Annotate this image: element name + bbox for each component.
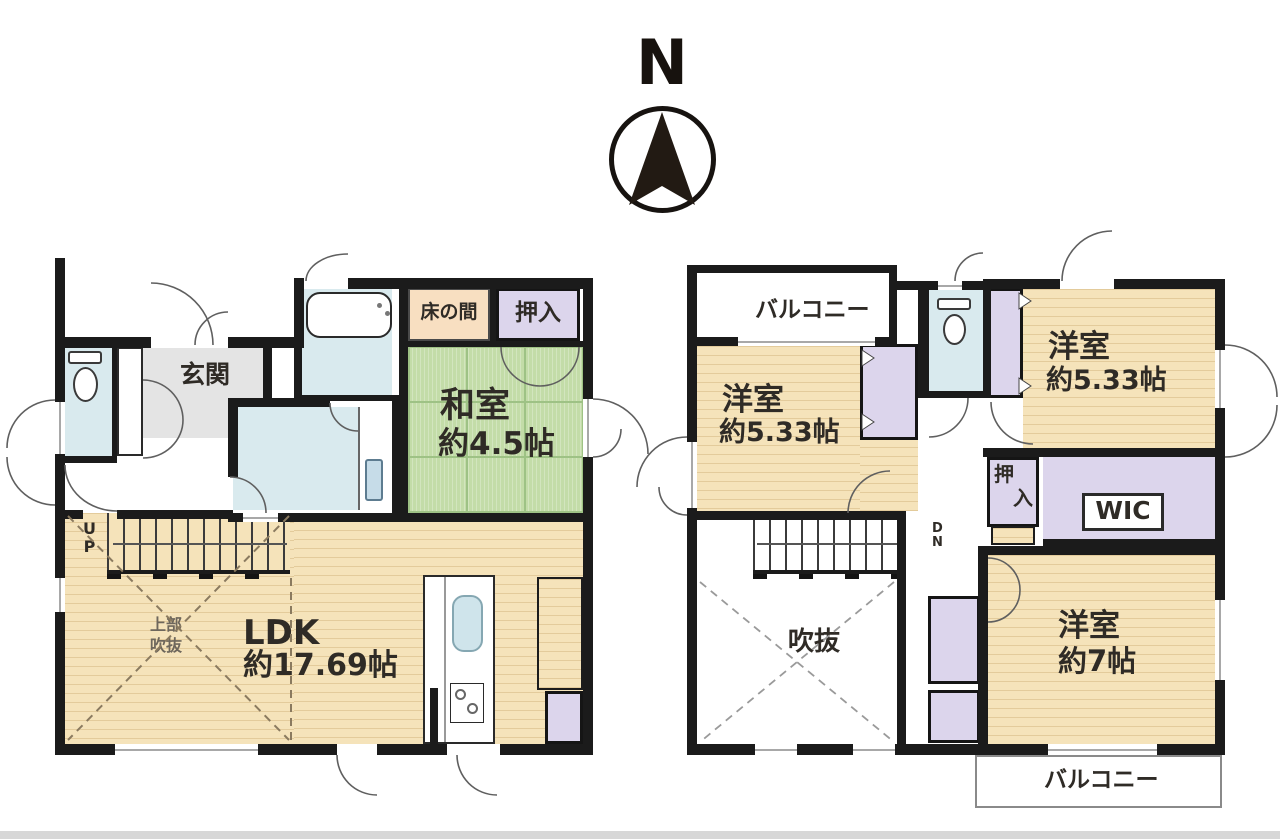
window xyxy=(738,337,875,346)
wall xyxy=(228,513,593,522)
door-opening xyxy=(337,744,377,755)
shoe-cabinet xyxy=(117,347,143,456)
kitchen-counter-edge xyxy=(444,577,446,742)
wall xyxy=(687,511,906,520)
door-opening xyxy=(304,278,348,289)
bedroom-se-size: 約7帖 xyxy=(1058,646,1136,676)
toilet-bowl-icon-1f xyxy=(73,367,98,402)
compass-circle xyxy=(609,106,716,213)
compass-north-label: N xyxy=(636,30,688,95)
ldk-name: LDK xyxy=(243,616,319,652)
staircase-2f-rail-line xyxy=(757,543,897,545)
washing-machine-icon xyxy=(365,459,383,501)
bedroom-se-name: 洋室 xyxy=(1058,610,1120,643)
wall xyxy=(55,258,65,755)
stove-icon xyxy=(450,683,484,723)
staircase-1f-rail-line xyxy=(113,543,287,545)
balcony-south-label: バルコニー xyxy=(1044,768,1159,792)
wall xyxy=(228,398,238,477)
stairs-up-label: U P xyxy=(83,520,96,555)
window xyxy=(853,744,895,755)
staircase-2f xyxy=(753,518,899,572)
bedroom-nw-closet xyxy=(860,344,918,440)
staircase-2f-hatch xyxy=(753,574,899,579)
wall xyxy=(918,391,991,398)
bath-faucet-icon xyxy=(377,303,382,308)
washroom-floor xyxy=(233,407,358,510)
wall xyxy=(897,511,906,755)
window xyxy=(55,402,65,454)
wall xyxy=(294,348,302,404)
oshiire-label-2f-char1: 押 xyxy=(994,464,1014,485)
wall xyxy=(978,546,988,755)
wall xyxy=(687,337,738,346)
toilet-bowl-icon-2f xyxy=(943,314,966,345)
bathtub-icon xyxy=(306,292,392,338)
toilet-tank-icon-1f xyxy=(68,351,102,364)
entrance-step xyxy=(143,407,233,438)
window xyxy=(583,399,593,457)
wall xyxy=(918,281,929,398)
wall xyxy=(987,546,1225,555)
kitchen-sink-icon xyxy=(452,595,483,652)
void-label: 吹抜 xyxy=(788,629,840,656)
wall xyxy=(55,337,151,348)
tokonoma-label: 床の間 xyxy=(408,303,490,323)
kitchen-cabinet xyxy=(537,577,583,690)
entrance-label: 玄関 xyxy=(180,362,230,388)
wall xyxy=(112,343,117,459)
wall xyxy=(983,448,1225,457)
bedroom-nw-size: 約5.33帖 xyxy=(719,419,840,447)
page-bottom-divider xyxy=(0,831,1280,839)
window xyxy=(115,744,258,755)
wall xyxy=(889,265,897,346)
oshiire-label-2f-char2: 入 xyxy=(1013,488,1033,509)
hall-closet-b xyxy=(928,690,980,743)
wall xyxy=(399,278,408,520)
window xyxy=(1215,600,1225,680)
entrance-door-opening xyxy=(151,337,228,348)
door-opening xyxy=(447,744,500,755)
washer-alcove-divider xyxy=(358,407,360,510)
ldk-size: 約17.69帖 xyxy=(243,650,398,682)
stove-burner-icon xyxy=(455,689,466,700)
hall-closet-a xyxy=(928,596,980,684)
bedroom-nw-name: 洋室 xyxy=(722,384,784,417)
japanese-room-size: 約4.5帖 xyxy=(438,428,555,461)
void-above-label: 上部 吹抜 xyxy=(150,615,182,657)
hall-counter xyxy=(991,526,1035,545)
bedroom-ne-name: 洋室 xyxy=(1048,331,1110,364)
stove-burner-icon xyxy=(467,703,478,714)
wall xyxy=(294,282,304,348)
window xyxy=(687,442,697,508)
staircase-1f-hatch xyxy=(107,574,290,579)
wall xyxy=(233,398,330,407)
bedroom-ne-size: 約5.33帖 xyxy=(1046,367,1167,395)
wall xyxy=(55,456,117,463)
balcony-north-label: バルコニー xyxy=(755,298,870,322)
wall xyxy=(875,337,897,346)
oshiire-label-1f: 押入 xyxy=(496,301,580,325)
door-opening xyxy=(1060,279,1114,289)
wic-label: WIC xyxy=(1082,498,1164,524)
bedroom-nw-floor-ext xyxy=(860,438,918,511)
window xyxy=(755,744,797,755)
window xyxy=(938,281,962,290)
bedroom-ne-closet xyxy=(987,288,1023,398)
bath-faucet-icon xyxy=(385,311,390,316)
storage-closet-1f xyxy=(545,691,583,744)
floorplan-canvas: N xyxy=(0,0,1280,839)
wall xyxy=(983,281,991,398)
window xyxy=(1048,744,1157,755)
wall xyxy=(430,688,438,744)
toilet-tank-icon-2f xyxy=(937,298,971,310)
wall xyxy=(687,265,897,273)
wall xyxy=(58,510,83,519)
window xyxy=(1215,350,1225,408)
japanese-room-name: 和室 xyxy=(440,388,510,425)
stairs-down-label: D N xyxy=(932,522,943,551)
wall xyxy=(117,510,233,519)
door-opening xyxy=(243,513,278,522)
window xyxy=(55,578,65,612)
